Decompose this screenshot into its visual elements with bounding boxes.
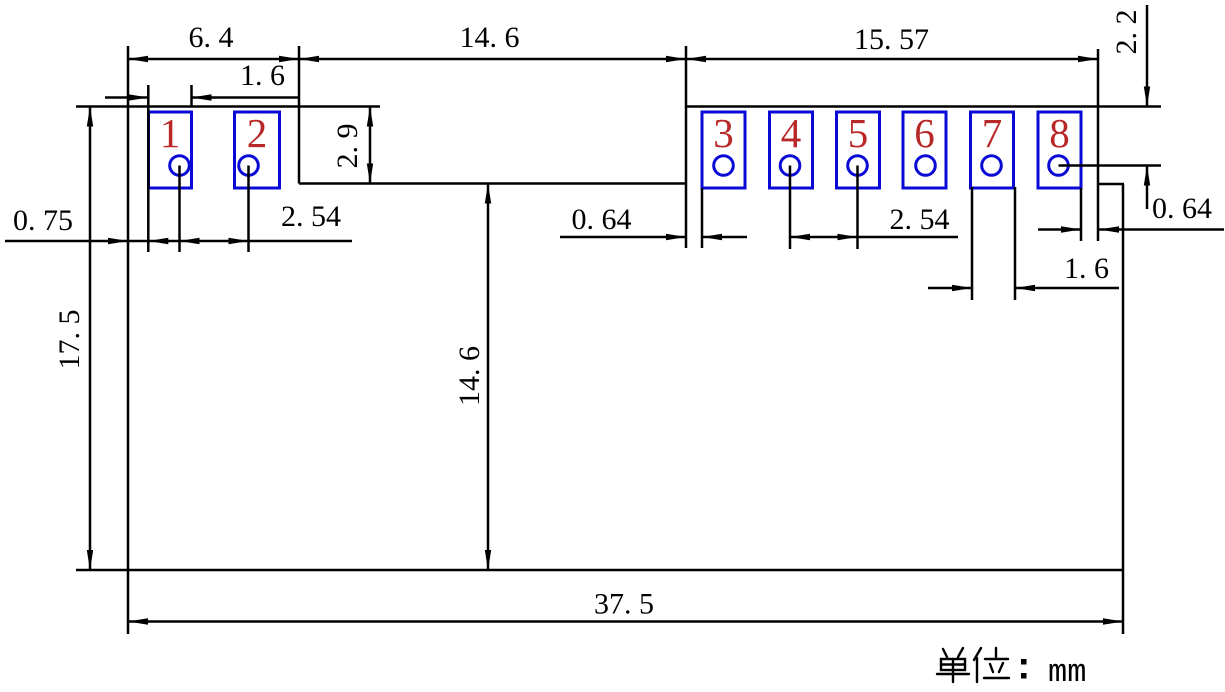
svg-text:15. 57: 15. 57 [854,23,929,56]
svg-text:7: 7 [982,110,1003,156]
svg-text:14. 6: 14. 6 [453,346,486,406]
svg-text:2. 54: 2. 54 [281,200,341,233]
svg-text:6: 6 [914,110,935,156]
svg-text:0. 75: 0. 75 [13,204,73,237]
svg-text:3: 3 [713,110,734,156]
svg-text:14. 6: 14. 6 [460,21,520,54]
svg-text:37. 5: 37. 5 [594,588,654,621]
svg-text:2. 2: 2. 2 [1110,10,1143,55]
svg-text:mm: mm [1048,654,1086,691]
svg-text:0. 64: 0. 64 [1152,192,1212,225]
svg-text:2. 54: 2. 54 [890,203,950,236]
svg-text:2. 9: 2. 9 [331,124,364,169]
svg-text:8: 8 [1049,110,1070,156]
svg-text:1. 6: 1. 6 [240,59,285,92]
svg-text:4: 4 [781,110,802,156]
svg-text:5: 5 [848,110,869,156]
svg-text:6. 4: 6. 4 [189,21,234,54]
svg-text:17. 5: 17. 5 [53,310,86,370]
svg-text:1. 6: 1. 6 [1064,252,1109,285]
svg-text:0. 64: 0. 64 [572,203,632,236]
svg-text:2: 2 [247,110,268,156]
svg-text:1: 1 [160,110,181,156]
